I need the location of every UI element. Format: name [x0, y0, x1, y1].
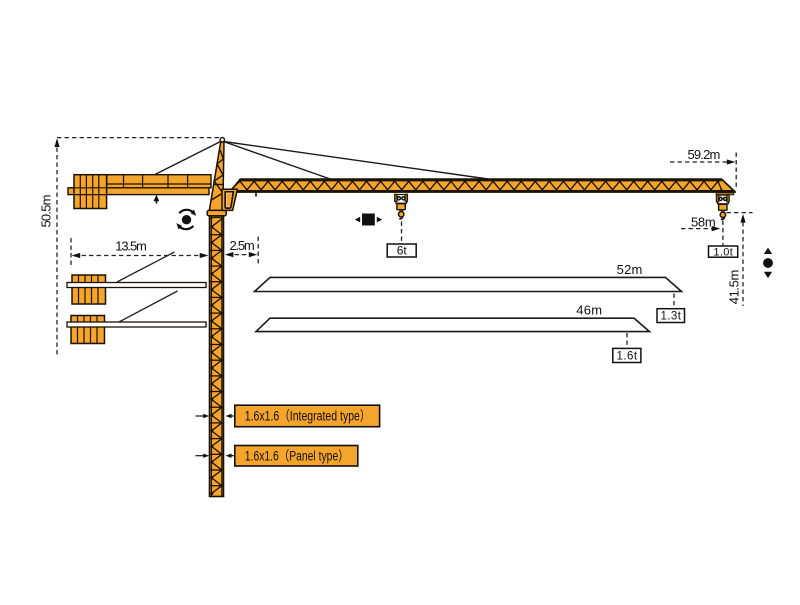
svg-text:1.6t: 1.6t: [617, 351, 638, 363]
svg-text:1.6x1.6（Panel type）: 1.6x1.6（Panel type）: [245, 448, 349, 463]
svg-text:1.3t: 1.3t: [660, 311, 681, 323]
svg-text:46m: 46m: [576, 302, 602, 317]
svg-text:52m: 52m: [617, 262, 643, 277]
svg-text:41.5m: 41.5m: [727, 270, 742, 305]
svg-text:1.6x1.6（Integrated type）: 1.6x1.6（Integrated type）: [245, 409, 371, 424]
svg-text:6t: 6t: [397, 244, 408, 258]
svg-text:50.5m: 50.5m: [39, 195, 54, 228]
svg-text:1.0t: 1.0t: [713, 246, 733, 258]
svg-text:2.5m: 2.5m: [230, 238, 255, 253]
svg-text:59.2m: 59.2m: [688, 147, 721, 162]
svg-text:13.5m: 13.5m: [115, 239, 147, 254]
svg-text:58m: 58m: [691, 215, 716, 230]
